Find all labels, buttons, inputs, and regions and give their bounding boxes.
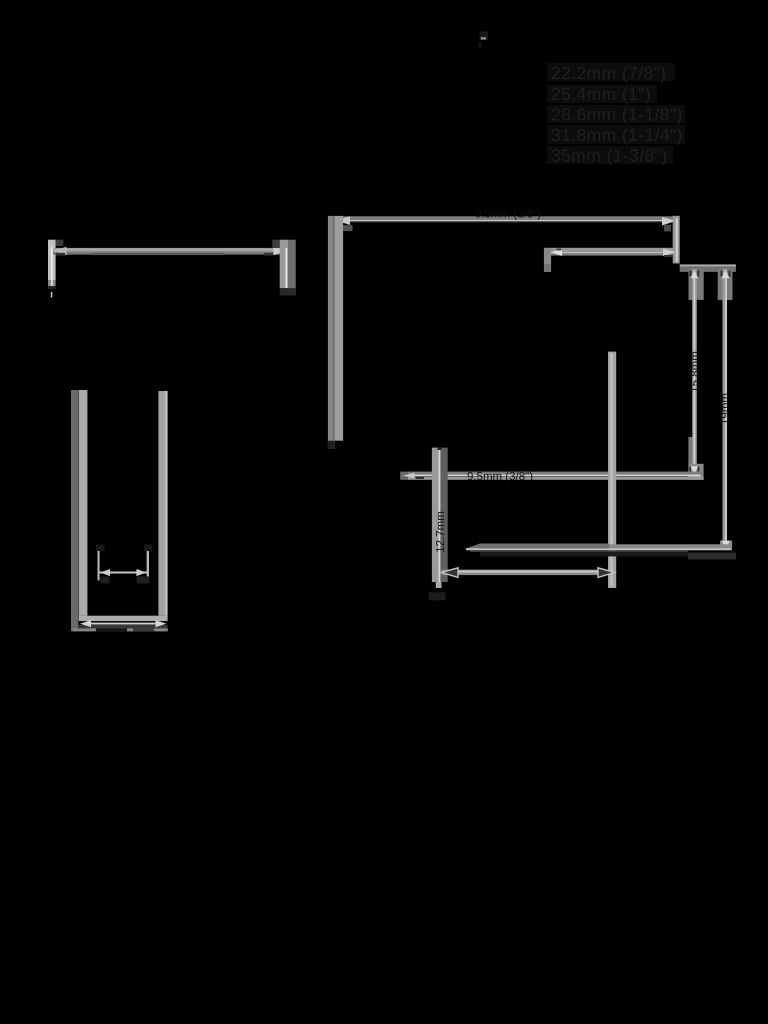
svg-text:19mm: 19mm [720,393,732,425]
svg-text:31.8mm (1-1/4"): 31.8mm (1-1/4") [551,125,683,145]
svg-text:25.4mm (1"): 25.4mm (1") [551,84,651,104]
svg-text:22.2mm (7/8"): 22.2mm (7/8") [551,63,666,83]
svg-text:35mm (1-3/8"): 35mm (1-3/8") [551,146,667,166]
svg-text:9.5mm (3/8"): 9.5mm (3/8") [475,209,541,221]
svg-text:12.7mm: 12.7mm [435,511,447,553]
svg-text:28.6mm (1-1/8"): 28.6mm (1-1/8") [551,105,683,125]
svg-text:9.5mm (3/8"): 9.5mm (3/8") [467,471,533,483]
svg-text:15.8mm: 15.8mm [690,351,702,393]
